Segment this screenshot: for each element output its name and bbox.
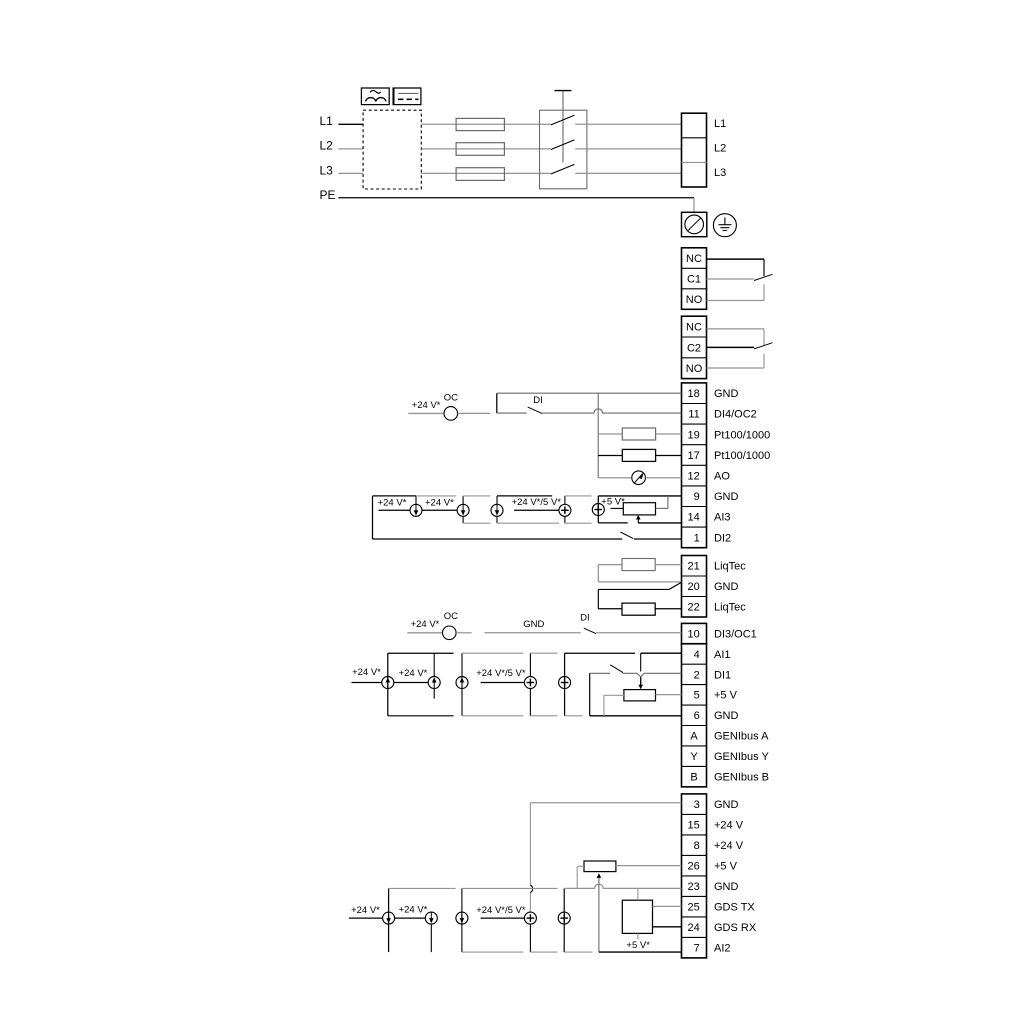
svg-text:GND: GND — [714, 581, 739, 593]
svg-text:Pt100/1000: Pt100/1000 — [714, 450, 770, 462]
svg-text:LiqTec: LiqTec — [714, 561, 746, 573]
svg-text:GND: GND — [714, 881, 739, 893]
svg-text:L1: L1 — [714, 118, 726, 130]
svg-text:+24 V*/5 V*: +24 V*/5 V* — [476, 668, 526, 679]
svg-text:DI4/OC2: DI4/OC2 — [714, 409, 757, 421]
svg-text:GENIbus A: GENIbus A — [714, 731, 769, 743]
svg-text:18: 18 — [688, 388, 700, 400]
svg-text:L3: L3 — [714, 167, 726, 179]
svg-text:L2: L2 — [714, 143, 726, 155]
svg-text:+24 V*/5 V*: +24 V*/5 V* — [476, 905, 526, 916]
svg-text:+5 V*: +5 V* — [601, 497, 625, 508]
svg-text:+24 V*: +24 V* — [399, 905, 428, 916]
svg-text:GND: GND — [714, 491, 739, 503]
svg-text:C1: C1 — [687, 273, 701, 285]
svg-text:3: 3 — [694, 799, 700, 811]
svg-text:9: 9 — [694, 491, 700, 503]
svg-text:NC: NC — [686, 322, 702, 334]
svg-text:DI: DI — [533, 395, 543, 406]
svg-text:+5 V: +5 V — [714, 861, 738, 873]
svg-text:PE: PE — [320, 188, 336, 202]
svg-text:GND: GND — [523, 619, 544, 630]
svg-text:GDS RX: GDS RX — [714, 922, 757, 934]
svg-text:DI3/OC1: DI3/OC1 — [714, 629, 757, 641]
svg-text:25: 25 — [688, 902, 700, 914]
svg-text:NO: NO — [686, 363, 703, 375]
svg-text:Pt100/1000: Pt100/1000 — [714, 429, 770, 441]
svg-text:AO: AO — [714, 471, 730, 483]
svg-text:GND: GND — [714, 388, 739, 400]
svg-text:20: 20 — [688, 581, 700, 593]
svg-text:6: 6 — [694, 710, 700, 722]
svg-text:AI1: AI1 — [714, 649, 731, 661]
svg-text:C2: C2 — [687, 342, 701, 354]
svg-text:22: 22 — [688, 602, 700, 614]
svg-text:5: 5 — [694, 690, 700, 702]
svg-text:AI2: AI2 — [714, 943, 731, 955]
svg-text:24: 24 — [688, 922, 700, 934]
svg-text:+24 V*: +24 V* — [425, 498, 454, 509]
svg-text:GND: GND — [714, 799, 739, 811]
svg-text:19: 19 — [688, 429, 700, 441]
svg-text:GENIbus Y: GENIbus Y — [714, 751, 769, 763]
svg-text:4: 4 — [694, 649, 700, 661]
svg-text:8: 8 — [694, 840, 700, 852]
svg-text:L2: L2 — [320, 139, 334, 153]
svg-text:+24 V*: +24 V* — [351, 905, 380, 916]
svg-text:DI1: DI1 — [714, 669, 731, 681]
svg-text:+24 V: +24 V — [714, 840, 744, 852]
svg-text:OC: OC — [444, 611, 458, 622]
svg-text:DI2: DI2 — [714, 532, 731, 544]
svg-text:+5 V*: +5 V* — [626, 940, 650, 951]
svg-text:Y: Y — [690, 751, 698, 763]
svg-text:21: 21 — [688, 561, 700, 573]
svg-text:GND: GND — [714, 710, 739, 722]
svg-text:L3: L3 — [320, 164, 334, 178]
svg-text:LiqTec: LiqTec — [714, 602, 746, 614]
svg-text:L1: L1 — [320, 114, 334, 128]
svg-text:+24 V*/5 V*: +24 V*/5 V* — [512, 497, 562, 508]
svg-text:26: 26 — [688, 861, 700, 873]
svg-text:NO: NO — [686, 294, 703, 306]
svg-text:DI: DI — [580, 613, 590, 624]
svg-text:17: 17 — [688, 450, 700, 462]
svg-text:+5 V: +5 V — [714, 690, 738, 702]
svg-text:GENIbus B: GENIbus B — [714, 772, 769, 784]
svg-text:23: 23 — [688, 881, 700, 893]
svg-text:+24 V*: +24 V* — [412, 400, 441, 411]
svg-text:+24 V*: +24 V* — [352, 667, 381, 678]
svg-text:B: B — [690, 772, 697, 784]
svg-text:+24 V: +24 V — [714, 820, 744, 832]
svg-text:15: 15 — [688, 820, 700, 832]
svg-text:OC: OC — [444, 393, 458, 404]
svg-text:A: A — [690, 731, 698, 743]
svg-text:12: 12 — [688, 471, 700, 483]
svg-text:1: 1 — [694, 532, 700, 544]
svg-text:7: 7 — [694, 943, 700, 955]
svg-text:+24 V*: +24 V* — [378, 498, 407, 509]
svg-text:14: 14 — [688, 512, 700, 524]
svg-text:GDS TX: GDS TX — [714, 902, 755, 914]
svg-text:AI3: AI3 — [714, 512, 731, 524]
svg-text:NC: NC — [686, 253, 702, 265]
svg-text:2: 2 — [694, 669, 700, 681]
svg-text:+24 V*: +24 V* — [411, 619, 440, 630]
svg-text:+24 V*: +24 V* — [399, 668, 428, 679]
svg-text:11: 11 — [688, 409, 699, 421]
svg-text:10: 10 — [688, 629, 700, 641]
